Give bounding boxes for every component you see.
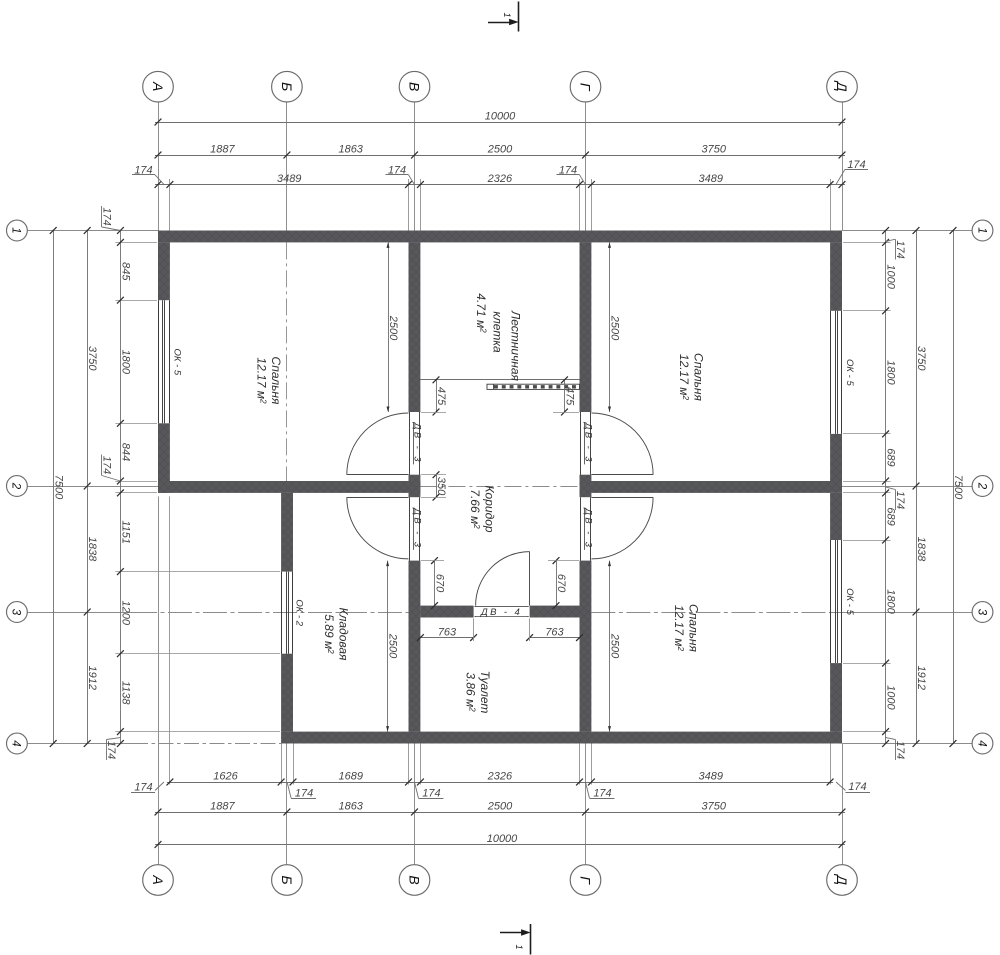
svg-text:174: 174: [894, 741, 906, 759]
svg-text:689: 689: [885, 448, 897, 466]
svg-text:1: 1: [514, 944, 524, 949]
svg-text:2: 2: [975, 482, 987, 490]
svg-text:174: 174: [295, 788, 313, 800]
svg-text:3750: 3750: [702, 801, 727, 813]
svg-text:1: 1: [502, 12, 512, 17]
svg-text:1000: 1000: [885, 264, 897, 289]
svg-text:1800: 1800: [885, 360, 897, 385]
svg-text:12.17 м2: 12.17 м2: [677, 354, 691, 401]
svg-text:475: 475: [435, 387, 447, 406]
svg-text:12.17 м2: 12.17 м2: [672, 605, 686, 652]
svg-text:ДВ - 4: ДВ - 4: [480, 607, 522, 618]
svg-text:ДВ - 3: ДВ - 3: [583, 507, 594, 549]
svg-text:Д: Д: [834, 80, 850, 92]
svg-text:В: В: [406, 82, 422, 91]
svg-text:клетка: клетка: [491, 311, 505, 353]
svg-text:1838: 1838: [915, 537, 927, 562]
svg-text:174: 174: [105, 741, 117, 759]
svg-text:Д: Д: [834, 873, 850, 885]
svg-text:2326: 2326: [487, 771, 513, 783]
svg-text:689: 689: [885, 507, 897, 525]
svg-text:2500: 2500: [387, 633, 399, 659]
svg-text:174: 174: [422, 788, 440, 800]
svg-text:1689: 1689: [339, 771, 363, 783]
svg-text:1800: 1800: [885, 589, 897, 614]
svg-text:174: 174: [894, 491, 906, 509]
svg-text:174: 174: [100, 456, 112, 474]
svg-text:1912: 1912: [86, 666, 98, 690]
svg-text:3489: 3489: [277, 173, 301, 185]
svg-text:1912: 1912: [915, 666, 927, 690]
svg-text:1887: 1887: [210, 801, 235, 813]
svg-text:ДВ - 3: ДВ - 3: [412, 507, 423, 549]
svg-text:2326: 2326: [487, 173, 513, 185]
svg-text:4: 4: [975, 740, 987, 746]
svg-text:844: 844: [119, 443, 131, 461]
svg-text:Спальня: Спальня: [269, 357, 283, 405]
svg-text:ОК - 2: ОК - 2: [294, 599, 305, 626]
svg-text:3750: 3750: [702, 144, 727, 156]
svg-text:Кладовая: Кладовая: [337, 608, 351, 661]
svg-text:763: 763: [438, 626, 457, 638]
svg-text:670: 670: [434, 574, 446, 593]
svg-text:4: 4: [10, 740, 22, 746]
svg-text:1626: 1626: [213, 771, 238, 783]
svg-text:1138: 1138: [119, 681, 131, 706]
svg-text:763: 763: [545, 626, 564, 638]
svg-text:2500: 2500: [487, 144, 513, 156]
svg-text:174: 174: [593, 788, 611, 800]
svg-text:174: 174: [100, 207, 112, 225]
svg-text:7500: 7500: [52, 475, 64, 500]
svg-text:Спальня: Спальня: [687, 604, 701, 652]
svg-text:3489: 3489: [699, 173, 723, 185]
svg-text:ОК - 5: ОК - 5: [171, 348, 182, 375]
svg-text:3750: 3750: [86, 346, 98, 371]
svg-text:Туалет: Туалет: [478, 671, 492, 714]
svg-text:Спальня: Спальня: [692, 353, 706, 401]
svg-text:10000: 10000: [485, 111, 516, 123]
svg-text:2500: 2500: [487, 801, 513, 813]
svg-text:1000: 1000: [885, 685, 897, 710]
svg-text:2: 2: [10, 482, 22, 490]
svg-text:5.89 м2: 5.89 м2: [322, 614, 336, 654]
svg-text:1151: 1151: [119, 520, 131, 544]
svg-text:А: А: [150, 874, 166, 884]
svg-text:10000: 10000: [487, 833, 518, 845]
svg-text:4.71 м2: 4.71 м2: [474, 293, 488, 333]
svg-text:Коридор: Коридор: [483, 485, 497, 532]
svg-text:1800: 1800: [119, 350, 131, 375]
svg-text:12.17 м2: 12.17 м2: [254, 357, 268, 404]
svg-text:2500: 2500: [609, 315, 621, 341]
svg-text:1: 1: [975, 227, 987, 233]
svg-text:670: 670: [555, 574, 567, 593]
svg-text:174: 174: [894, 240, 906, 258]
svg-text:1887: 1887: [210, 144, 235, 156]
svg-text:3489: 3489: [699, 771, 723, 783]
svg-text:350: 350: [435, 477, 447, 496]
svg-text:174: 174: [134, 782, 152, 794]
svg-text:845: 845: [119, 262, 131, 281]
svg-text:3: 3: [10, 609, 22, 616]
svg-text:1200: 1200: [119, 600, 131, 625]
svg-text:ОК - 5: ОК - 5: [844, 359, 855, 386]
svg-text:А: А: [150, 81, 166, 91]
svg-text:1863: 1863: [338, 144, 363, 156]
svg-text:174: 174: [848, 781, 866, 793]
svg-text:2500: 2500: [387, 315, 399, 341]
svg-text:3: 3: [975, 609, 987, 616]
svg-text:7.66 м2: 7.66 м2: [468, 489, 482, 529]
svg-text:7500: 7500: [952, 475, 964, 500]
svg-text:1: 1: [10, 227, 22, 233]
svg-text:Лестничная: Лестничная: [509, 310, 523, 382]
svg-text:1838: 1838: [86, 537, 98, 562]
svg-text:ОК - 5: ОК - 5: [844, 588, 855, 615]
svg-text:2500: 2500: [609, 633, 621, 659]
svg-text:3.86 м2: 3.86 м2: [463, 672, 477, 712]
svg-text:475: 475: [564, 387, 576, 406]
svg-text:1863: 1863: [338, 801, 363, 813]
svg-text:В: В: [406, 875, 422, 884]
svg-text:3750: 3750: [915, 346, 927, 371]
svg-text:ДВ - 3: ДВ - 3: [412, 422, 423, 464]
svg-text:ДВ - 3: ДВ - 3: [583, 422, 594, 464]
svg-text:Б: Б: [279, 82, 295, 91]
svg-text:Б: Б: [279, 875, 295, 884]
